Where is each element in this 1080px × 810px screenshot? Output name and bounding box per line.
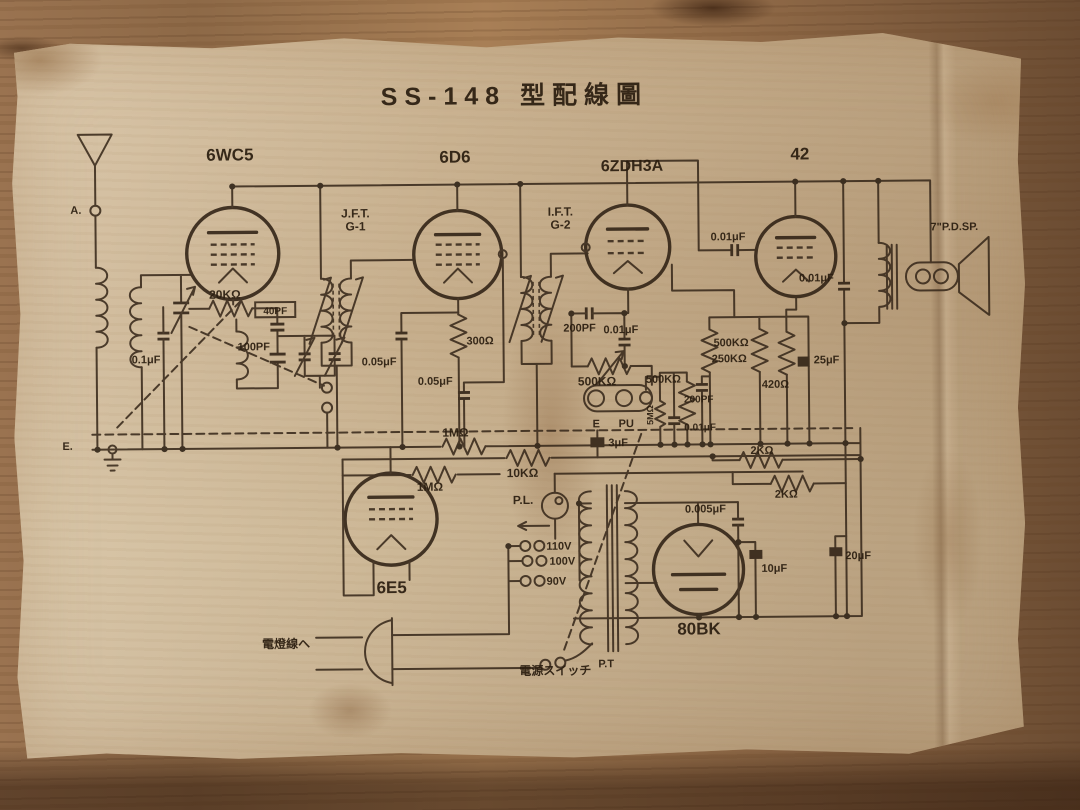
label-cap-10uf: 10μF xyxy=(761,563,787,575)
power-transformer xyxy=(579,485,638,651)
cap-001uf-4 xyxy=(838,283,850,289)
schematic-drawing: SS-148 型配線圖6WC56D66ZDH3A426E580BKJ.F.T.G… xyxy=(9,30,1031,765)
label-tap-100v: 100V xyxy=(549,556,575,568)
cap-25uf xyxy=(798,356,810,366)
label-cap-40pf: 40PF xyxy=(263,306,287,317)
tube-label-42: 42 xyxy=(790,144,809,163)
label-res-10k: 10KΩ xyxy=(507,466,539,480)
antenna-coil xyxy=(96,268,108,348)
label-cap-25uf: 25μF xyxy=(814,354,840,366)
pilot-lamp xyxy=(542,493,568,519)
schematic-paper: SS-148 型配線圖6WC56D66ZDH3A426E580BKJ.F.T.G… xyxy=(9,30,1031,765)
label-res-420: 420Ω xyxy=(762,379,789,391)
label-jack-e: E xyxy=(593,418,600,430)
res-20k xyxy=(209,300,252,316)
cap-10uf xyxy=(749,550,762,559)
phono-jack xyxy=(584,385,652,412)
label-cap-005uf-1: 0.05μF xyxy=(362,356,397,368)
label-cap-200pf-1: 200PF xyxy=(563,322,596,334)
label-res-20k: 20KΩ xyxy=(209,287,241,301)
tube-label-80bk: 80BK xyxy=(677,619,721,638)
label-cap-0-1uf: 0.1μF xyxy=(132,354,161,366)
schematic-title: SS-148 型配線圖 xyxy=(381,80,649,111)
label-tap-90v: 90V xyxy=(547,576,567,588)
wood-table: SS-148 型配線圖6WC56D66ZDH3A426E580BKJ.F.T.G… xyxy=(0,0,1080,810)
label-pt: P.T xyxy=(598,658,614,670)
label-res-300: 300Ω xyxy=(466,335,493,347)
tube-label-6d6: 6D6 xyxy=(439,147,470,166)
tube-label-6e5: 6E5 xyxy=(376,578,406,597)
label-res-2k-2: 2KΩ xyxy=(775,489,798,501)
cap-40pf xyxy=(270,324,284,330)
label-res-5m: 5MΩ xyxy=(645,405,655,425)
label-cap-001uf-2: 0.01μF xyxy=(684,422,716,433)
label-jft-g1: G-1 xyxy=(345,219,365,233)
label-cap-200pf-2: 200PF xyxy=(684,394,714,405)
cap-005uf-1 xyxy=(395,333,407,339)
label-cap-20uf: 20μF xyxy=(845,550,871,562)
tube-80bk-symbol xyxy=(653,524,744,615)
label-res-500k-avc: 500KΩ xyxy=(646,374,681,386)
ground-icon xyxy=(104,453,120,470)
res-420 xyxy=(778,332,794,375)
tube-42-symbol xyxy=(755,216,836,297)
cap-001uf-1 xyxy=(618,339,630,345)
label-res-1m-1: 1MΩ xyxy=(442,425,469,439)
label-power-cord: 電燈線へ xyxy=(262,636,310,651)
label-terminal-e: E. xyxy=(62,441,73,453)
res-300 xyxy=(450,314,466,357)
cap-001uf-3 xyxy=(732,244,738,256)
avc-bus-dashed xyxy=(92,428,852,435)
label-res-1m-2: 1MΩ xyxy=(417,480,444,494)
label-res-250k: 250KΩ xyxy=(712,353,747,365)
label-pl: P.L. xyxy=(513,493,534,507)
ift-g1-symbol xyxy=(321,278,352,342)
antenna-terminal xyxy=(90,206,100,216)
tube-6zdh3a-symbol xyxy=(585,205,670,290)
res-250k xyxy=(751,329,767,372)
output-transformer xyxy=(844,243,898,323)
label-ift-g2: G-2 xyxy=(550,218,570,232)
label-pot-500k: 500KΩ xyxy=(578,374,617,388)
tube-label-6wc5: 6WC5 xyxy=(206,145,253,164)
osc-coil xyxy=(236,331,248,379)
tube-label-6zdh3a: 6ZDH3A xyxy=(601,158,664,176)
schematic-linework xyxy=(78,127,993,688)
ift-g2-symbol xyxy=(521,277,552,341)
res-10k xyxy=(506,450,549,466)
cap-20uf xyxy=(829,547,842,556)
label-speaker: 7"P.D.SP. xyxy=(930,221,978,233)
label-cap-0005uf: 0.005μF xyxy=(685,503,726,515)
label-res-500k-b: 500KΩ xyxy=(713,337,748,349)
label-jack-pu: PU xyxy=(619,418,634,430)
cap-200pf-2 xyxy=(696,384,708,390)
res-500k-b xyxy=(701,329,717,372)
voice-coil xyxy=(906,262,958,290)
antenna-icon xyxy=(78,135,115,450)
label-cap-001uf-3: 0.01μF xyxy=(711,231,746,243)
label-tap-110v: 110V xyxy=(546,541,572,553)
label-res-2k-1: 2KΩ xyxy=(750,445,773,457)
label-cap-001uf-4: 0.01μF xyxy=(799,272,834,284)
cap-100pf xyxy=(270,354,286,362)
label-cap-005uf-2: 0.05μF xyxy=(418,376,453,388)
label-cap-100pf: 100PF xyxy=(238,341,271,353)
cap-3uf xyxy=(590,437,604,447)
label-power-switch: 電源スイッチ xyxy=(519,662,591,678)
label-cap-001uf-1: 0.01μF xyxy=(603,324,638,336)
power-plug xyxy=(316,618,393,686)
label-cap-3uf: 3μF xyxy=(608,437,628,449)
schematic-labels: SS-148 型配線圖6WC56D66ZDH3A426E580BKJ.F.T.G… xyxy=(59,77,982,682)
label-jft: J.F.T. xyxy=(341,206,370,220)
label-terminal-a: A. xyxy=(70,205,81,217)
speaker-icon xyxy=(959,237,990,315)
